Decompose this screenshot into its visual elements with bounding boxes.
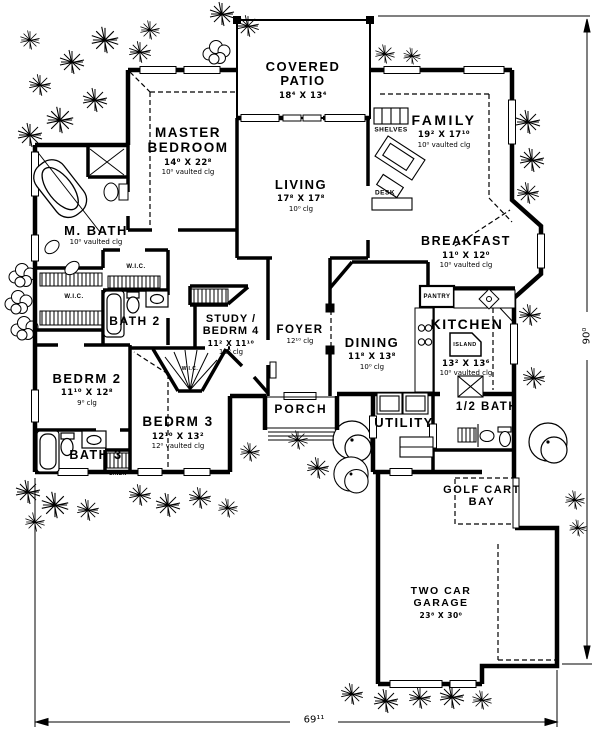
room-name: COVERED PATIO [253,60,353,89]
room-ceiling: 9⁰ clg [52,400,121,408]
room-label-garage: TWO CAR GARAGE 23⁸ X 30⁰ [404,586,478,620]
room-dims: 19² X 17¹⁰ [411,131,476,140]
column [326,346,334,354]
room-ceiling: 10⁰ clg [275,206,327,214]
room-name: STUDY / BEDRM 4 [197,313,265,337]
master-toilet [104,183,128,201]
room-name: BREAKFAST [421,235,511,249]
floor-plan-drawing [0,0,600,737]
shelves-label: SHELVES [374,127,407,134]
room-dims: 11⁸ X 13⁸ [345,353,400,362]
floor-plan: COVERED PATIO 18⁴ X 13⁴ MASTER BEDROOM 1… [0,0,600,737]
room-dims: 11⁰ X 12⁰ [421,252,511,261]
room-label-kitchen: KITCHEN [431,317,504,332]
room-ceiling: 10⁰ vaulted clg [421,262,511,270]
island-label: ISLAND [453,342,476,348]
room-name: 1/2 BATH [456,401,518,414]
niche [270,362,276,378]
room-dims: 23⁸ X 30⁰ [404,612,478,620]
room-name: KITCHEN [431,317,504,332]
room-label-master-bedroom: MASTER BEDROOM 14⁰ X 22⁸ 10⁰ vaulted clg [129,126,247,177]
landscaping-plants [5,2,586,713]
room-dims: 13² X 13⁶ [440,360,493,369]
room-dims: 18⁴ X 13⁴ [253,92,353,101]
room-label-dining: DINING 11⁸ X 13⁸ 10⁰ clg [345,336,400,371]
room-label-bedrm3: BEDRM 3 12¹⁰ X 13² 12⁰ vaulted clg [142,415,213,451]
room-label-study: STUDY / BEDRM 4 11² X 11¹⁰ 10⁰ clg [197,313,265,357]
appliance-box [458,376,483,397]
room-dims: 11² X 11¹⁰ [197,340,265,348]
room-ceiling: 10⁰ vaulted clg [129,169,247,177]
room-name: MASTER BEDROOM [129,126,247,156]
room-ceiling: 10⁰ vaulted clg [64,239,128,247]
linen-label: LINEN [109,471,127,477]
room-dims: 17⁸ X 17⁸ [275,195,327,204]
room-label-foyer: FOYER 12¹⁰ clg [276,324,323,345]
room-ceiling: 12⁰ vaulted clg [142,443,213,451]
overall-depth-dimension: 90⁰ [582,328,593,345]
room-label-bath2: BATH 2 [109,315,160,328]
room-name: UTILITY [374,416,434,430]
room-name: BEDRM 2 [52,372,121,386]
room-ceiling: 10⁰ clg [345,364,400,372]
wic-bedrm3-label: W.I.C. [182,366,199,372]
room-dims: 12¹⁰ X 13² [142,433,213,442]
room-label-family: FAMILY 19² X 17¹⁰ 10⁰ vaulted clg [411,113,476,149]
shower [90,149,124,175]
room-label-half-bath: 1/2 BATH [456,401,518,414]
room-dims: 14⁰ X 22⁸ [129,159,247,168]
room-label-bedrm2: BEDRM 2 11¹⁰ X 12⁸ 9⁰ clg [52,372,121,407]
room-name: M. BATH [64,224,128,238]
wic-master-label: W.I.C. [64,294,83,300]
room-ceiling: 10⁰ clg [197,349,265,357]
room-name: FOYER [276,324,323,337]
room-ceiling: 10⁰ vaulted clg [440,370,493,378]
room-label-master-bath: M. BATH 10⁰ vaulted clg [64,224,128,247]
room-label-living: LIVING 17⁸ X 17⁸ 10⁰ clg [275,178,327,213]
room-label-covered-patio: COVERED PATIO 18⁴ X 13⁴ [253,60,353,101]
room-name: LIVING [275,178,327,192]
room-label-utility: UTILITY [374,416,434,430]
wic-hall-label: W.I.C. [126,264,145,270]
pantry-label: PANTRY [424,294,451,300]
column [326,304,334,312]
room-dims: 11¹⁰ X 12⁸ [52,389,121,398]
room-label-golf-cart-bay: GOLF CART BAY [439,484,525,508]
desk-label: DESK [375,190,395,197]
room-label-breakfast: BREAKFAST 11⁰ X 12⁰ 10⁰ vaulted clg [421,235,511,270]
room-label-bath3: BATH 3 [69,449,122,463]
room-name: GOLF CART BAY [439,484,525,508]
room-label-porch: PORCH [274,403,327,416]
room-name: TWO CAR GARAGE [404,586,478,609]
room-ceiling: 12¹⁰ clg [276,338,323,346]
room-name: FAMILY [411,113,476,128]
half-bath-fixtures [478,424,511,447]
room-name: PORCH [274,403,327,416]
room-ceiling: 10⁰ vaulted clg [411,142,476,150]
room-name: BEDRM 3 [142,415,213,430]
family-shelves [374,108,408,124]
fixtures [28,108,515,472]
kitchen-dims-block: 13² X 13⁶ 10⁰ vaulted clg [440,357,493,378]
desk [372,198,412,210]
room-name: BATH 3 [69,449,122,463]
room-name: BATH 2 [109,315,160,328]
overall-width-dimension: 69¹¹ [304,715,325,726]
room-name: DINING [345,336,400,350]
